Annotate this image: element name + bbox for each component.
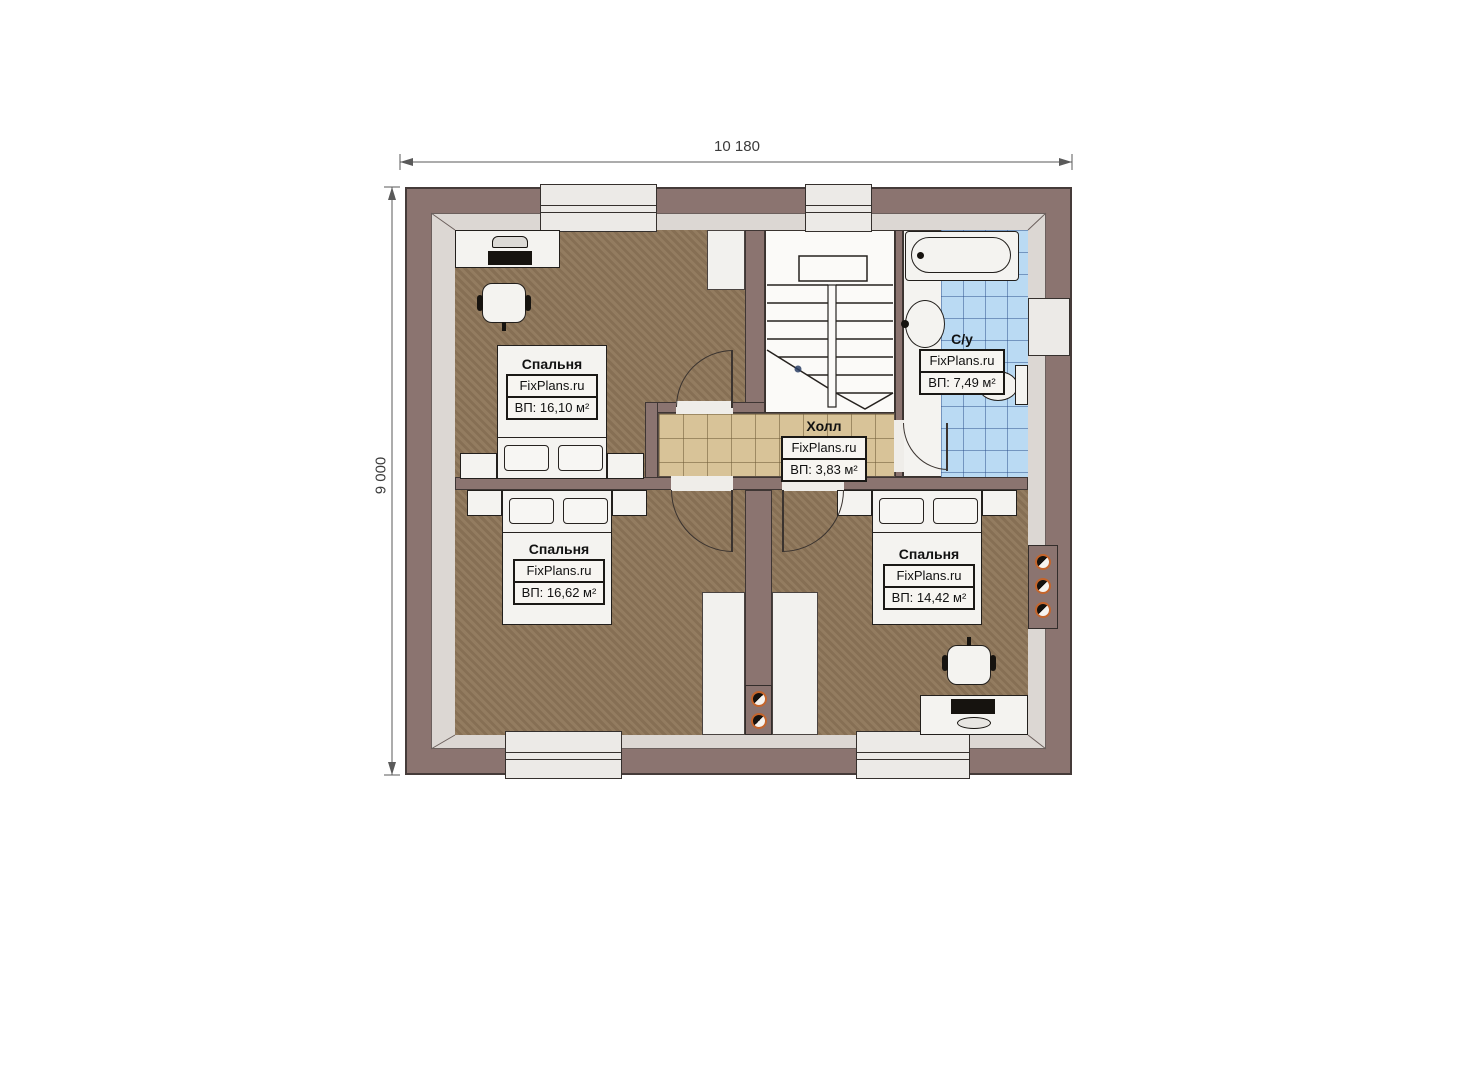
- bed-blanket-line: [872, 532, 982, 533]
- floor-plan-canvas: 10 180 9 000: [0, 0, 1473, 1080]
- pillow: [563, 498, 608, 524]
- watermark-label: FixPlans.ru: [515, 561, 604, 583]
- nightstand: [607, 453, 644, 479]
- room-area-label: ВП: 16,10 м²: [508, 398, 597, 418]
- room-name: Холл: [806, 417, 841, 435]
- chair-armrest: [942, 655, 948, 671]
- printer-icon: [492, 236, 528, 248]
- doorway-bedroom2: [671, 476, 733, 491]
- room-name: Спальня: [899, 545, 959, 563]
- faucet-icon: [917, 252, 924, 259]
- nightstand: [612, 490, 647, 516]
- window-glass: [540, 205, 657, 213]
- chair-armrest: [477, 295, 483, 311]
- bathtub-basin: [911, 237, 1011, 273]
- label-box: FixPlans.ru ВП: 16,10 м²: [506, 374, 599, 420]
- vent-stack-bottom: [745, 685, 772, 735]
- door-leaf: [946, 423, 948, 471]
- window-bottom-right: [856, 731, 970, 779]
- room-label-bedroom2: Спальня FixPlans.ru ВП: 16,62 м²: [507, 540, 611, 605]
- door-leaf: [731, 350, 733, 408]
- office-chair: [482, 283, 526, 323]
- window-bottom-left: [505, 731, 622, 779]
- vent-stack-right: [1028, 545, 1058, 629]
- wardrobe: [772, 592, 818, 735]
- pillow: [504, 445, 549, 471]
- office-chair: [947, 645, 991, 685]
- dimension-width-label: 10 180: [677, 138, 797, 155]
- nightstand: [467, 490, 502, 516]
- window-glass: [805, 205, 872, 213]
- room-name: С/у: [951, 330, 973, 348]
- chair-stem: [967, 637, 971, 646]
- watermark-label: FixPlans.ru: [921, 351, 1002, 373]
- bathtub-icon: [905, 231, 1019, 281]
- flue-icon: [1035, 554, 1051, 570]
- keyboard-icon: [957, 717, 991, 729]
- room-area-label: ВП: 16,62 м²: [515, 583, 604, 603]
- monitor-icon: [951, 699, 995, 714]
- label-box: FixPlans.ru ВП: 14,42 м²: [883, 564, 976, 610]
- pillow: [933, 498, 978, 524]
- room-label-bedroom1: Спальня FixPlans.ru ВП: 16,10 м²: [500, 355, 604, 420]
- room-name: Спальня: [522, 355, 582, 373]
- pillow: [509, 498, 554, 524]
- faucet-icon: [901, 320, 909, 328]
- window-bathroom-right: [1028, 298, 1070, 356]
- staircase: [765, 230, 895, 413]
- chair-armrest: [990, 655, 996, 671]
- window-top-left: [540, 184, 657, 232]
- bed-blanket-line: [502, 532, 612, 533]
- wall-bedroom1-stairwell: [745, 230, 765, 413]
- room-label-bathroom: С/у FixPlans.ru ВП: 7,49 м²: [912, 330, 1012, 395]
- laptop-icon: [488, 251, 532, 265]
- watermark-label: FixPlans.ru: [783, 438, 864, 460]
- window-glass: [856, 752, 970, 760]
- chair-armrest: [525, 295, 531, 311]
- nightstand: [460, 453, 497, 479]
- label-box: FixPlans.ru ВП: 16,62 м²: [513, 559, 606, 605]
- door-leaf: [731, 490, 733, 552]
- window-glass: [505, 752, 622, 760]
- room-label-hall: Холл FixPlans.ru ВП: 3,83 м²: [776, 417, 872, 482]
- pillow: [558, 445, 603, 471]
- room-label-bedroom3: Спальня FixPlans.ru ВП: 14,42 м²: [877, 545, 981, 610]
- label-box: FixPlans.ru ВП: 3,83 м²: [781, 436, 866, 482]
- door-leaf: [782, 490, 784, 552]
- dimension-height-label: 9 000: [373, 441, 390, 511]
- wardrobe: [702, 592, 745, 735]
- flue-icon: [1035, 578, 1051, 594]
- watermark-label: FixPlans.ru: [885, 566, 974, 588]
- bed-blanket-line: [497, 437, 607, 438]
- wardrobe: [707, 230, 745, 290]
- flue-icon: [1035, 602, 1051, 618]
- pillow: [879, 498, 924, 524]
- label-box: FixPlans.ru ВП: 7,49 м²: [919, 349, 1004, 395]
- room-area-label: ВП: 14,42 м²: [885, 588, 974, 608]
- flue-icon: [751, 713, 767, 729]
- chair-stem: [502, 322, 506, 331]
- room-name: Спальня: [529, 540, 589, 558]
- window-top-right: [805, 184, 872, 232]
- nightstand: [982, 490, 1017, 516]
- flue-icon: [751, 691, 767, 707]
- room-area-label: ВП: 3,83 м²: [783, 460, 864, 480]
- toilet-tank-icon: [1015, 365, 1028, 405]
- watermark-label: FixPlans.ru: [508, 376, 597, 398]
- room-area-label: ВП: 7,49 м²: [921, 373, 1002, 393]
